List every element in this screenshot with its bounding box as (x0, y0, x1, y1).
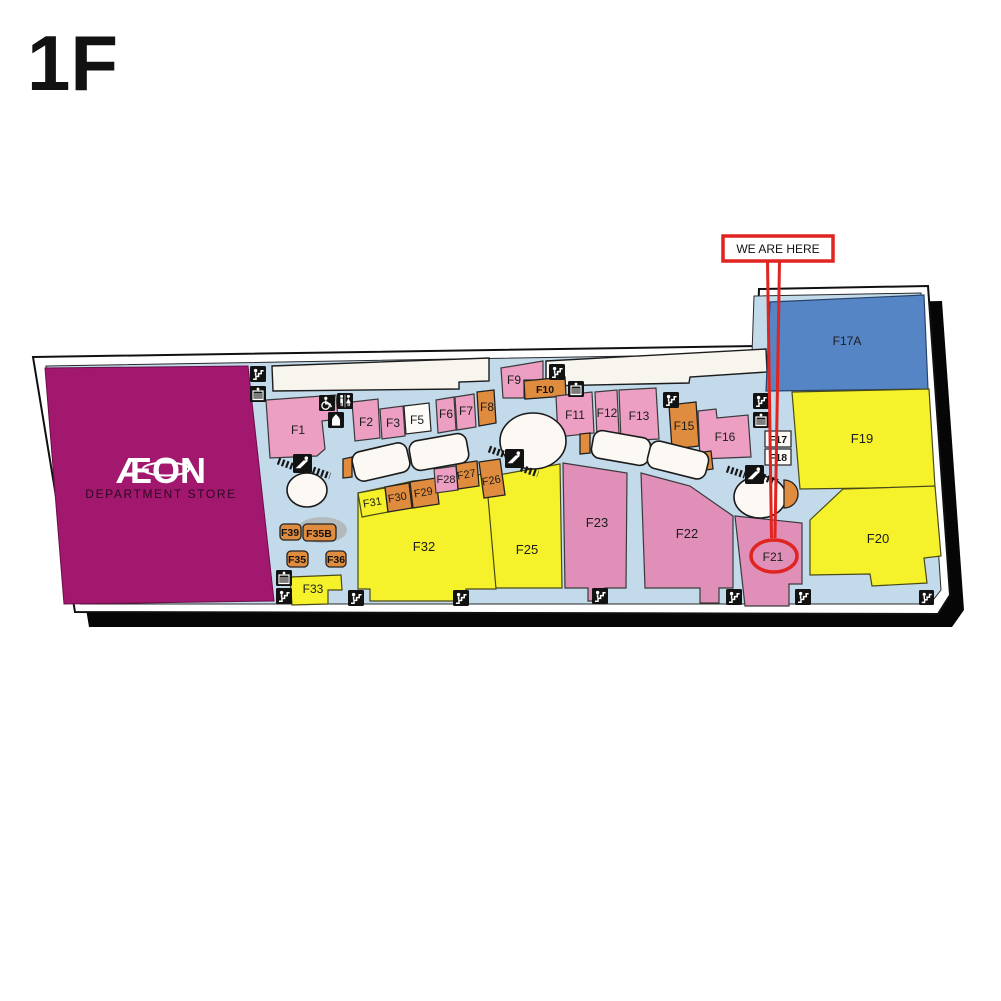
unit-F32-label: F32 (413, 539, 435, 554)
floor-title: 1F (27, 19, 118, 107)
accessible-toilet-icon (319, 395, 335, 411)
unit-F17A-label: F17A (833, 334, 862, 348)
unit-F15-label: F15 (674, 419, 695, 433)
unit-F12-label: F12 (597, 406, 618, 420)
unit-F7-label: F7 (459, 404, 473, 418)
stairs-icon (795, 589, 811, 605)
unit-F6-label: F6 (439, 407, 453, 421)
unit-F1-label: F1 (291, 423, 305, 437)
unit-F22-label: F22 (676, 526, 698, 541)
stairs-icon (919, 590, 934, 605)
stairs-icon (726, 589, 742, 605)
unit-F21-label: F21 (763, 550, 784, 564)
escalator-icon (568, 381, 584, 397)
unit-F3-label: F3 (386, 416, 400, 430)
prayer-room-icon (328, 412, 344, 428)
escalator-icon (276, 570, 292, 586)
stairs-icon (549, 364, 565, 380)
aeon-logo-subtitle: DEPARTMENT STORE (85, 487, 236, 501)
unit-F19-label: F19 (851, 431, 873, 446)
escalator-diagonal-icon (745, 465, 764, 484)
stairs-icon (276, 588, 292, 604)
stairs-icon (753, 393, 769, 409)
escalator-diagonal-icon (293, 454, 312, 473)
kiosk-sliver-1 (343, 457, 352, 478)
floor-map-page: ÆON DEPARTMENT STORE (0, 0, 1001, 1001)
escalator-icon (250, 386, 266, 402)
unit-F23-label: F23 (586, 515, 608, 530)
unit-F35B-label: F35B (306, 528, 332, 540)
stairs-icon (250, 366, 266, 382)
stairs-icon (663, 392, 679, 408)
unit-F20-label: F20 (867, 531, 889, 546)
unit-F8-label: F8 (480, 400, 494, 414)
atrium-circle-left (287, 473, 327, 507)
unit-F5-label: F5 (410, 413, 424, 427)
unit-F23 (563, 463, 627, 601)
unit-F33-label: F33 (303, 582, 324, 596)
kiosk-sliver-2 (580, 433, 590, 454)
unit-F16-label: F16 (715, 430, 736, 444)
unit-F13-label: F13 (629, 409, 650, 423)
unit-F10-label: F10 (536, 384, 554, 396)
toilet-icon (337, 393, 353, 409)
unit-F25-label: F25 (516, 542, 538, 557)
unit-F2-label: F2 (359, 415, 373, 429)
aeon-logo: ÆON (116, 450, 206, 491)
stairs-icon (348, 590, 364, 606)
unit-F36-label: F36 (327, 554, 345, 566)
unit-F9-label: F9 (507, 373, 521, 387)
stairs-icon (453, 590, 469, 606)
escalator-diagonal-icon (505, 449, 524, 468)
unit-F35-label: F35 (288, 554, 306, 566)
escalator-icon (753, 412, 769, 428)
unit-F11-label: F11 (565, 408, 585, 422)
unit-F39-label: F39 (281, 527, 299, 539)
marker-label: WE ARE HERE (736, 242, 819, 256)
floor-map: ÆON DEPARTMENT STORE (0, 0, 1001, 1001)
unit-F28-label: F28 (437, 474, 456, 486)
stairs-icon (592, 588, 608, 604)
